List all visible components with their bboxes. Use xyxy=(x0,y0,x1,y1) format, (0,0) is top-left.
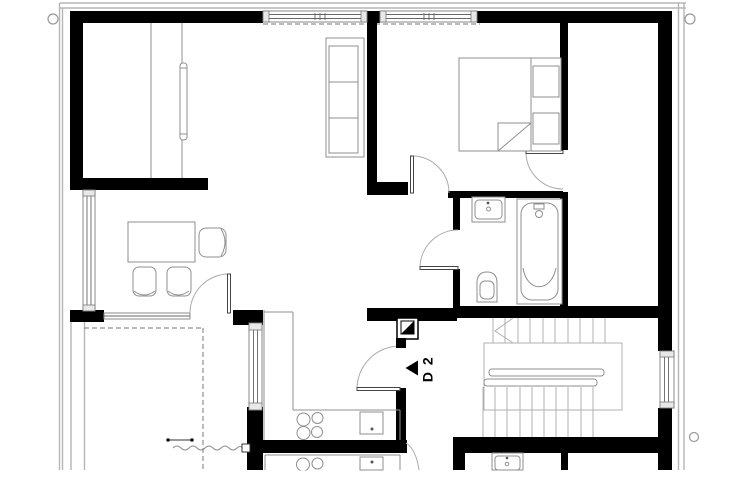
dining-chair-south-2 xyxy=(167,267,191,296)
stair-treads-lower xyxy=(483,387,593,437)
door-arc-lower-floor xyxy=(406,443,419,470)
door-number-text: D 2 xyxy=(420,356,436,382)
window-north-2 xyxy=(380,11,477,22)
door-bedroom xyxy=(411,156,450,193)
cabinet-three-sections xyxy=(326,38,364,157)
washbasin xyxy=(472,197,505,222)
pillow-2 xyxy=(533,113,559,144)
dining-chair-south-1 xyxy=(133,267,156,296)
wall-stub-entrance xyxy=(396,338,406,348)
dining-table xyxy=(128,222,195,262)
chimney-shaft-symbol xyxy=(397,318,418,339)
pillow-1 xyxy=(533,66,559,97)
double-bed xyxy=(459,58,561,151)
floor-plan-drawing: D 2 xyxy=(0,0,750,500)
entrance-triangle-icon xyxy=(406,361,419,376)
stair-treads-upper xyxy=(493,318,605,343)
drawing-cut-edge xyxy=(0,471,750,500)
door-dining-terrace xyxy=(190,274,231,313)
door-apartment-entrance xyxy=(357,346,400,391)
terrace-dashed-outline xyxy=(84,328,203,469)
kitchen-appliance xyxy=(360,412,383,434)
radiator xyxy=(180,63,187,140)
staircase xyxy=(483,318,622,437)
lower-floor-fragment xyxy=(265,453,523,471)
dining-chair-east xyxy=(199,228,226,257)
stair-break-line xyxy=(495,318,513,343)
window-east-stairs xyxy=(660,351,674,408)
cooktop-lower xyxy=(297,458,310,471)
window-west-kitchen xyxy=(249,323,262,410)
door-bathroom xyxy=(420,230,458,270)
window-north-1 xyxy=(263,11,367,22)
bathtub xyxy=(517,199,562,304)
window-west-dining xyxy=(83,190,95,311)
junction-box-icon xyxy=(242,444,250,452)
cable-symbol xyxy=(167,439,251,453)
floor-plan-page: D 2 xyxy=(0,0,750,500)
washbasin-lower xyxy=(492,453,523,470)
cooktop xyxy=(297,413,323,440)
french-window-sill-dining xyxy=(104,313,190,319)
door-east-room xyxy=(526,151,563,190)
entrance-door-label: D 2 xyxy=(406,356,436,382)
toilet xyxy=(477,272,497,302)
stair-handrails xyxy=(484,369,604,386)
wardrobe xyxy=(151,23,182,178)
